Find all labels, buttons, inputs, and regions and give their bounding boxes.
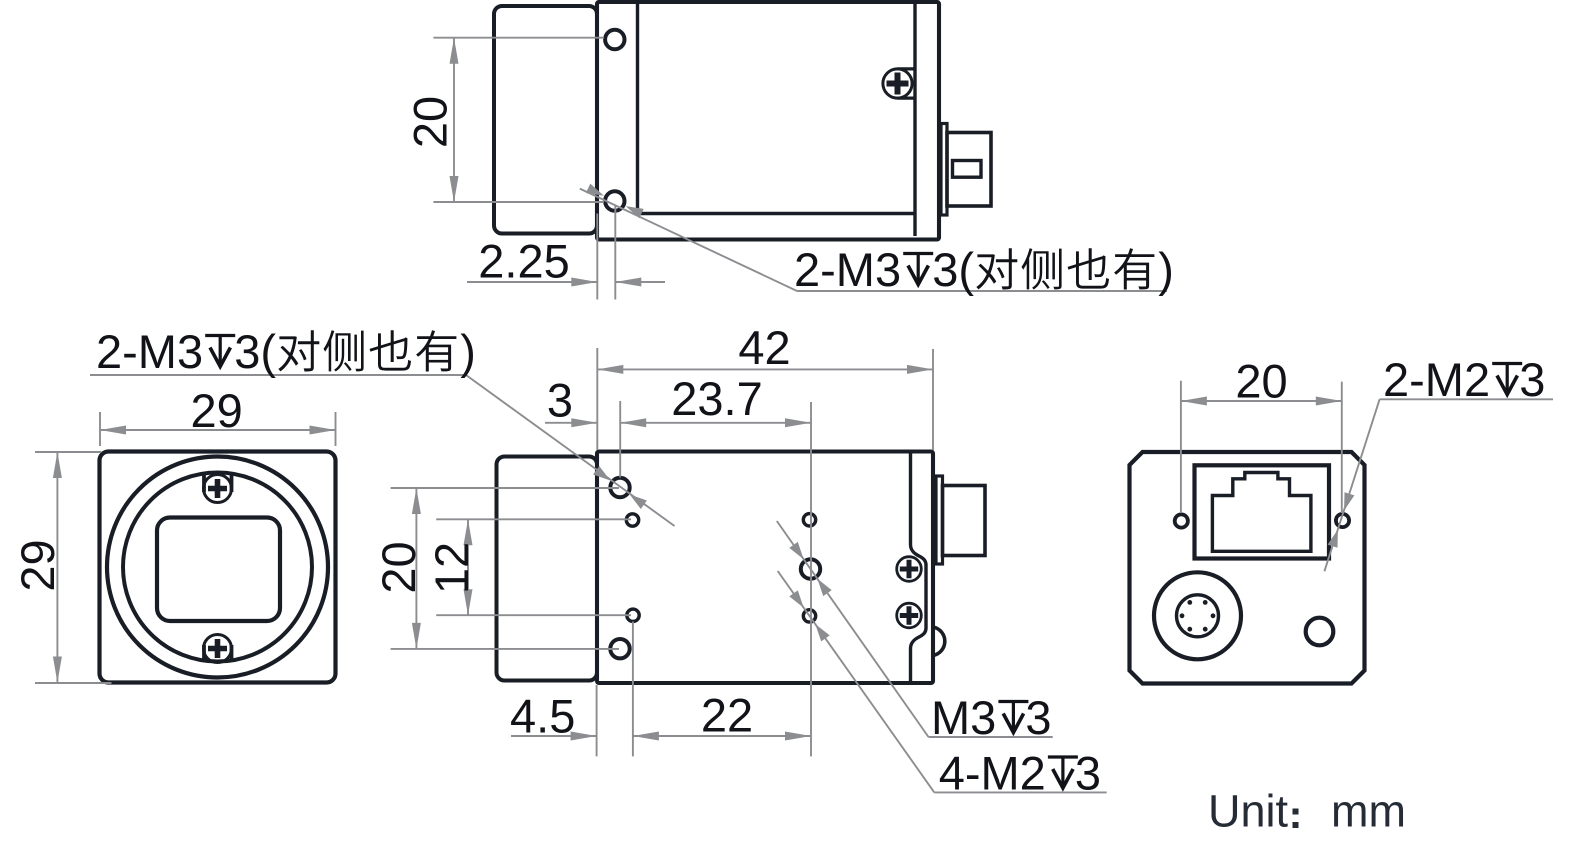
svg-text:3: 3 [1519,353,1545,406]
svg-text:29: 29 [190,384,242,437]
svg-text:2-M3: 2-M3 [794,243,901,296]
svg-text:3: 3 [1075,747,1101,800]
svg-text:2-M2: 2-M2 [1383,353,1490,406]
svg-text:): ) [1158,243,1174,296]
svg-text:M3: M3 [931,691,996,744]
svg-text:3(: 3( [932,243,974,296]
svg-text:20: 20 [372,541,425,593]
svg-text:23.7: 23.7 [671,372,762,425]
svg-text:20: 20 [1235,355,1287,408]
svg-text:20: 20 [404,96,457,148]
svg-text:3: 3 [1025,691,1051,744]
svg-text:2.25: 2.25 [478,235,569,288]
svg-text:29: 29 [11,539,64,591]
svg-text:3(: 3( [234,325,276,378]
svg-text:12: 12 [425,542,478,594]
svg-text:2-M3: 2-M3 [96,325,203,378]
svg-text:): ) [460,325,476,378]
svg-text:4-M2: 4-M2 [939,747,1046,800]
svg-text:mm: mm [1331,786,1406,837]
svg-text:4.5: 4.5 [510,690,575,743]
svg-text:22: 22 [701,689,753,742]
svg-text:42: 42 [738,321,790,374]
svg-text:3: 3 [547,373,573,426]
svg-text:Unit: Unit [1208,786,1289,837]
